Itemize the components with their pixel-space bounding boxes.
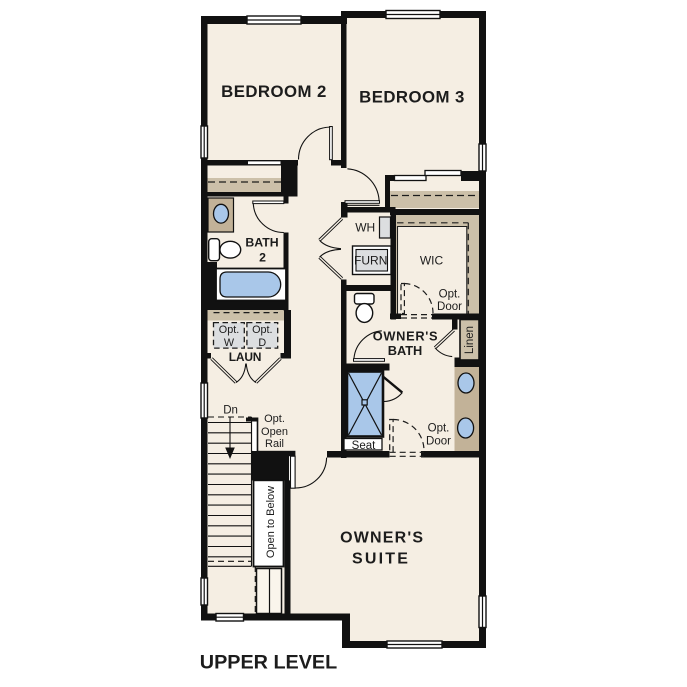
svg-text:Open to Below: Open to Below: [265, 486, 277, 558]
svg-text:FURN: FURN: [354, 254, 387, 268]
svg-text:Opt.: Opt.: [219, 324, 239, 336]
svg-text:Opt.: Opt.: [428, 423, 450, 435]
svg-text:Opt.: Opt.: [252, 324, 272, 336]
svg-text:WIC: WIC: [420, 254, 444, 268]
svg-text:Linen: Linen: [464, 326, 476, 354]
svg-text:BATH: BATH: [245, 235, 278, 249]
svg-text:W: W: [224, 337, 235, 349]
svg-text:Door: Door: [426, 436, 451, 448]
svg-text:WH: WH: [355, 221, 375, 235]
svg-text:SUITE: SUITE: [352, 551, 410, 568]
svg-text:D: D: [258, 337, 266, 349]
svg-text:Seat: Seat: [352, 440, 376, 452]
svg-text:Rail: Rail: [265, 438, 284, 450]
svg-text:Opt.: Opt.: [264, 413, 285, 425]
svg-text:Dn: Dn: [223, 404, 238, 416]
svg-text:Opt.: Opt.: [439, 289, 461, 301]
svg-text:LAUN: LAUN: [229, 350, 262, 364]
svg-text:BEDROOM 3: BEDROOM 3: [359, 88, 465, 107]
svg-text:Open: Open: [261, 426, 288, 438]
svg-text:UPPER LEVEL: UPPER LEVEL: [200, 652, 337, 674]
svg-text:BATH: BATH: [388, 343, 423, 358]
svg-text:OWNER'S: OWNER'S: [340, 530, 424, 547]
svg-text:2: 2: [259, 251, 266, 265]
svg-text:OWNER'S: OWNER'S: [373, 329, 439, 344]
svg-text:Door: Door: [437, 301, 462, 313]
svg-text:BEDROOM 2: BEDROOM 2: [221, 82, 327, 101]
